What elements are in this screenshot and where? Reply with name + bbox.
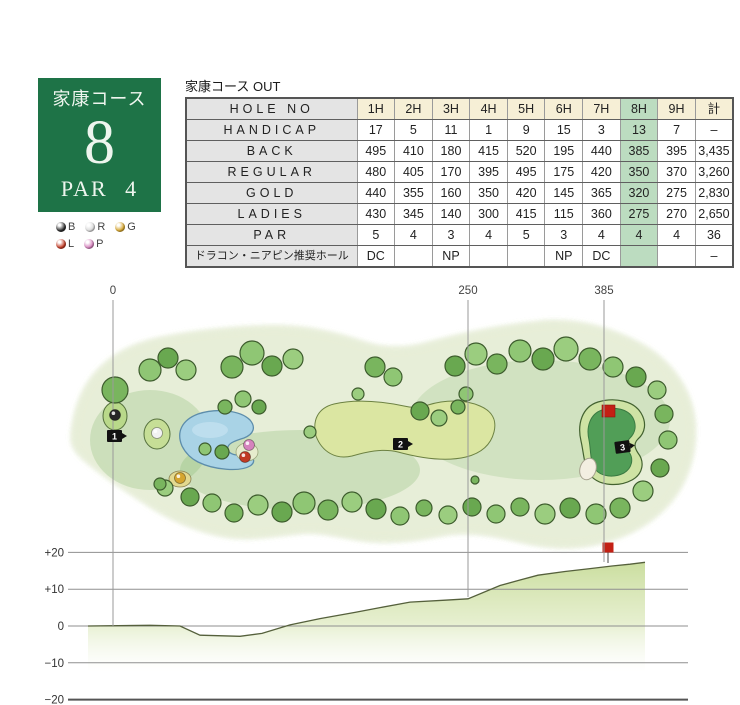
table-cell: – <box>695 246 733 268</box>
row-label: HOLE NO <box>186 98 357 120</box>
table-cell: 430 <box>357 204 395 225</box>
table-cell: NP <box>432 246 470 268</box>
y-axis-tick-label: −10 <box>44 658 64 670</box>
table-cell: 4 <box>583 225 621 246</box>
table-row: GOLD4403551603504201453653202752,830 <box>186 183 733 204</box>
table-row: HOLE NO1H2H3H4H5H6H7H8H9H計 <box>186 98 733 120</box>
row-label: GOLD <box>186 183 357 204</box>
tree-icon <box>416 500 432 516</box>
table-row: HANDICAP1751119153137– <box>186 120 733 141</box>
table-cell: 345 <box>395 204 433 225</box>
row-label: ドラコン・ニアピン推奨ホール <box>186 246 357 268</box>
table-cell: 270 <box>658 204 696 225</box>
table-row: PAR54345344436 <box>186 225 733 246</box>
tee-code-label: B <box>68 221 75 233</box>
row-label: BACK <box>186 141 357 162</box>
scorecard-table: HOLE NO1H2H3H4H5H6H7H8H9H計HANDICAP175111… <box>185 97 734 268</box>
tee-code-label: G <box>127 221 136 233</box>
table-cell: 3,435 <box>695 141 733 162</box>
tree-icon <box>365 357 385 377</box>
tree-icon <box>139 359 161 381</box>
tree-icon <box>366 499 386 519</box>
table-cell: 495 <box>507 162 545 183</box>
table-cell: 140 <box>432 204 470 225</box>
tree-icon <box>633 481 653 501</box>
table-cell: 3 <box>545 225 583 246</box>
row-label: PAR <box>186 225 357 246</box>
tree-icon <box>158 348 178 368</box>
y-axis-tick-label: −20 <box>44 695 64 705</box>
tree-icon <box>445 356 465 376</box>
tree-icon <box>102 377 128 403</box>
row-label: REGULAR <box>186 162 357 183</box>
terrain-area <box>88 562 645 672</box>
tee-ball-icon <box>84 239 94 249</box>
table-cell: 15 <box>545 120 583 141</box>
table-cell: 180 <box>432 141 470 162</box>
marker-number: 1 <box>112 432 117 442</box>
golf-hole-guide-page: { "hole_card": { "course_name": "家康コース",… <box>0 0 740 705</box>
table-row: LADIES4303451403004151153602752702,650 <box>186 204 733 225</box>
tree-icon <box>487 505 505 523</box>
tee-ball-P <box>244 440 255 451</box>
table-cell: 415 <box>507 204 545 225</box>
tee-ball-B <box>110 410 121 421</box>
tree-icon <box>248 495 268 515</box>
table-cell <box>658 246 696 268</box>
distance-label: 250 <box>458 285 477 297</box>
table-cell: 8H <box>620 98 658 120</box>
table-cell: 4 <box>658 225 696 246</box>
table-cell: 415 <box>470 141 508 162</box>
table-cell: 350 <box>620 162 658 183</box>
table-cell: 440 <box>357 183 395 204</box>
hole-number: 8 <box>38 113 161 173</box>
tree-icon <box>659 431 677 449</box>
marker-number: 2 <box>398 440 403 450</box>
course-illustration <box>86 336 680 533</box>
ball-highlight <box>242 453 246 457</box>
tree-icon <box>318 500 338 520</box>
tree-icon <box>651 459 669 477</box>
table-cell: NP <box>545 246 583 268</box>
ball-highlight <box>246 441 250 445</box>
table-cell: 5H <box>507 98 545 120</box>
table-row: BACK4954101804155201954403853953,435 <box>186 141 733 162</box>
tee-ball-icon <box>115 222 125 232</box>
y-axis-tick-label: +10 <box>44 584 64 596</box>
table-cell: 410 <box>395 141 433 162</box>
table-cell: 420 <box>507 183 545 204</box>
tree-icon <box>203 494 221 512</box>
table-cell <box>395 246 433 268</box>
tree-icon <box>342 492 362 512</box>
ball-highlight <box>154 429 158 433</box>
table-cell: 440 <box>583 141 621 162</box>
y-axis-tick-label: +20 <box>44 547 64 559</box>
par-label: PAR 4 <box>38 176 161 202</box>
table-cell: 395 <box>658 141 696 162</box>
tee-legend-row: BRG <box>56 218 146 235</box>
distance-label: 385 <box>594 285 613 297</box>
table-cell: 495 <box>357 141 395 162</box>
tree-icon <box>487 354 507 374</box>
tee-legend-row: LP <box>56 235 146 252</box>
table-cell: 480 <box>357 162 395 183</box>
table-cell: 6H <box>545 98 583 120</box>
tree-icon <box>176 360 196 380</box>
tree-icon <box>221 356 243 378</box>
tree-icon <box>579 348 601 370</box>
table-cell: 3 <box>432 225 470 246</box>
tree-icon <box>252 400 266 414</box>
table-row: ドラコン・ニアピン推奨ホールDCNPNPDC– <box>186 246 733 268</box>
table-cell: 275 <box>658 183 696 204</box>
tee-legend: BRGLP <box>56 218 146 252</box>
row-label: LADIES <box>186 204 357 225</box>
course-name: 家康コース <box>38 85 161 111</box>
table-cell: 3,260 <box>695 162 733 183</box>
tree-icon <box>240 341 264 365</box>
table-cell: 13 <box>620 120 658 141</box>
table-cell: 9H <box>658 98 696 120</box>
tee-code-label: P <box>96 238 103 250</box>
table-cell: DC <box>583 246 621 268</box>
table-cell: 3 <box>583 120 621 141</box>
table-cell: 7 <box>658 120 696 141</box>
tree-icon <box>262 356 282 376</box>
tree-icon <box>293 492 315 514</box>
tree-icon <box>225 504 243 522</box>
tree-icon <box>218 400 232 414</box>
table-cell: 350 <box>470 183 508 204</box>
tree-icon <box>463 498 481 516</box>
tree-icon <box>283 349 303 369</box>
tree-icon <box>648 381 666 399</box>
table-cell: 5 <box>507 225 545 246</box>
tree-icon <box>215 445 229 459</box>
table-cell: 3H <box>432 98 470 120</box>
distance-label: 0 <box>110 285 116 297</box>
table-cell: 195 <box>545 141 583 162</box>
table-cell: 320 <box>620 183 658 204</box>
tee-code-label: L <box>68 238 74 250</box>
tee-ball-R <box>152 428 163 439</box>
tee-legend-item: L <box>56 238 74 250</box>
table-cell <box>620 246 658 268</box>
pond-highlight <box>192 422 228 438</box>
tree-icon <box>199 443 211 455</box>
tree-icon <box>439 506 457 524</box>
hole-info-card: 家康コース 8 PAR 4 <box>38 78 161 212</box>
table-cell: 395 <box>470 162 508 183</box>
tree-icon <box>586 504 606 524</box>
table-cell: 1 <box>470 120 508 141</box>
table-cell: 9 <box>507 120 545 141</box>
table-cell: 355 <box>395 183 433 204</box>
table-cell: 170 <box>432 162 470 183</box>
table-cell: 4H <box>470 98 508 120</box>
table-cell: DC <box>357 246 395 268</box>
tree-icon <box>431 410 447 426</box>
tree-icon <box>154 478 166 490</box>
table-cell: 360 <box>583 204 621 225</box>
table-cell <box>507 246 545 268</box>
table-cell: 115 <box>545 204 583 225</box>
table-cell: 5 <box>395 120 433 141</box>
table-cell: 275 <box>620 204 658 225</box>
tree-icon <box>535 504 555 524</box>
table-cell: 2H <box>395 98 433 120</box>
tree-icon <box>509 340 531 362</box>
tee-legend-item: R <box>85 221 105 233</box>
tree-icon <box>181 488 199 506</box>
tree-icon <box>471 476 479 484</box>
table-cell: 160 <box>432 183 470 204</box>
table-cell: 11 <box>432 120 470 141</box>
table-cell <box>470 246 508 268</box>
y-axis-tick-label: 0 <box>58 621 64 633</box>
tee-ball-G <box>175 473 186 484</box>
table-cell: – <box>695 120 733 141</box>
table-row: REGULAR4804051703954951754203503703,260 <box>186 162 733 183</box>
table-cell: 36 <box>695 225 733 246</box>
tree-icon <box>459 387 473 401</box>
table-cell: 520 <box>507 141 545 162</box>
tree-icon <box>272 502 292 522</box>
table-cell: 5 <box>357 225 395 246</box>
tree-icon <box>384 368 402 386</box>
table-cell: 4 <box>395 225 433 246</box>
tree-icon <box>352 388 364 400</box>
table-cell: 2,650 <box>695 204 733 225</box>
table-cell: 145 <box>545 183 583 204</box>
scorecard-title: 家康コース OUT <box>185 76 280 95</box>
tree-icon <box>304 426 316 438</box>
elevation-terrain-fill <box>88 562 645 672</box>
tee-code-label: R <box>97 221 105 233</box>
table-cell: 420 <box>583 162 621 183</box>
table-cell: 405 <box>395 162 433 183</box>
tee-ball-icon <box>56 239 66 249</box>
table-cell: 1H <box>357 98 395 120</box>
table-cell: 370 <box>658 162 696 183</box>
tree-icon <box>451 400 465 414</box>
tee-ball-L <box>240 452 251 463</box>
table-cell: 365 <box>583 183 621 204</box>
table-cell: 4 <box>620 225 658 246</box>
tee-legend-item: P <box>84 238 103 250</box>
tree-icon <box>532 348 554 370</box>
ball-highlight <box>112 411 116 415</box>
table-cell: 300 <box>470 204 508 225</box>
ball-highlight <box>177 474 181 478</box>
tee-ball-icon <box>56 222 66 232</box>
table-cell: 385 <box>620 141 658 162</box>
tree-icon <box>560 498 580 518</box>
tree-icon <box>603 357 623 377</box>
tee-ball-icon <box>85 222 95 232</box>
table-cell: 17 <box>357 120 395 141</box>
tree-icon <box>235 391 251 407</box>
table-cell: 計 <box>695 98 733 120</box>
tee-legend-item: B <box>56 221 75 233</box>
row-label: HANDICAP <box>186 120 357 141</box>
tree-icon <box>554 337 578 361</box>
table-cell: 4 <box>470 225 508 246</box>
tree-icon <box>391 507 409 525</box>
tree-icon <box>610 498 630 518</box>
tree-icon <box>655 405 673 423</box>
tree-icon <box>626 367 646 387</box>
tee-legend-item: G <box>115 221 136 233</box>
table-cell: 2,830 <box>695 183 733 204</box>
table-cell: 175 <box>545 162 583 183</box>
table-cell: 7H <box>583 98 621 120</box>
tree-icon <box>511 498 529 516</box>
tree-icon <box>411 402 429 420</box>
